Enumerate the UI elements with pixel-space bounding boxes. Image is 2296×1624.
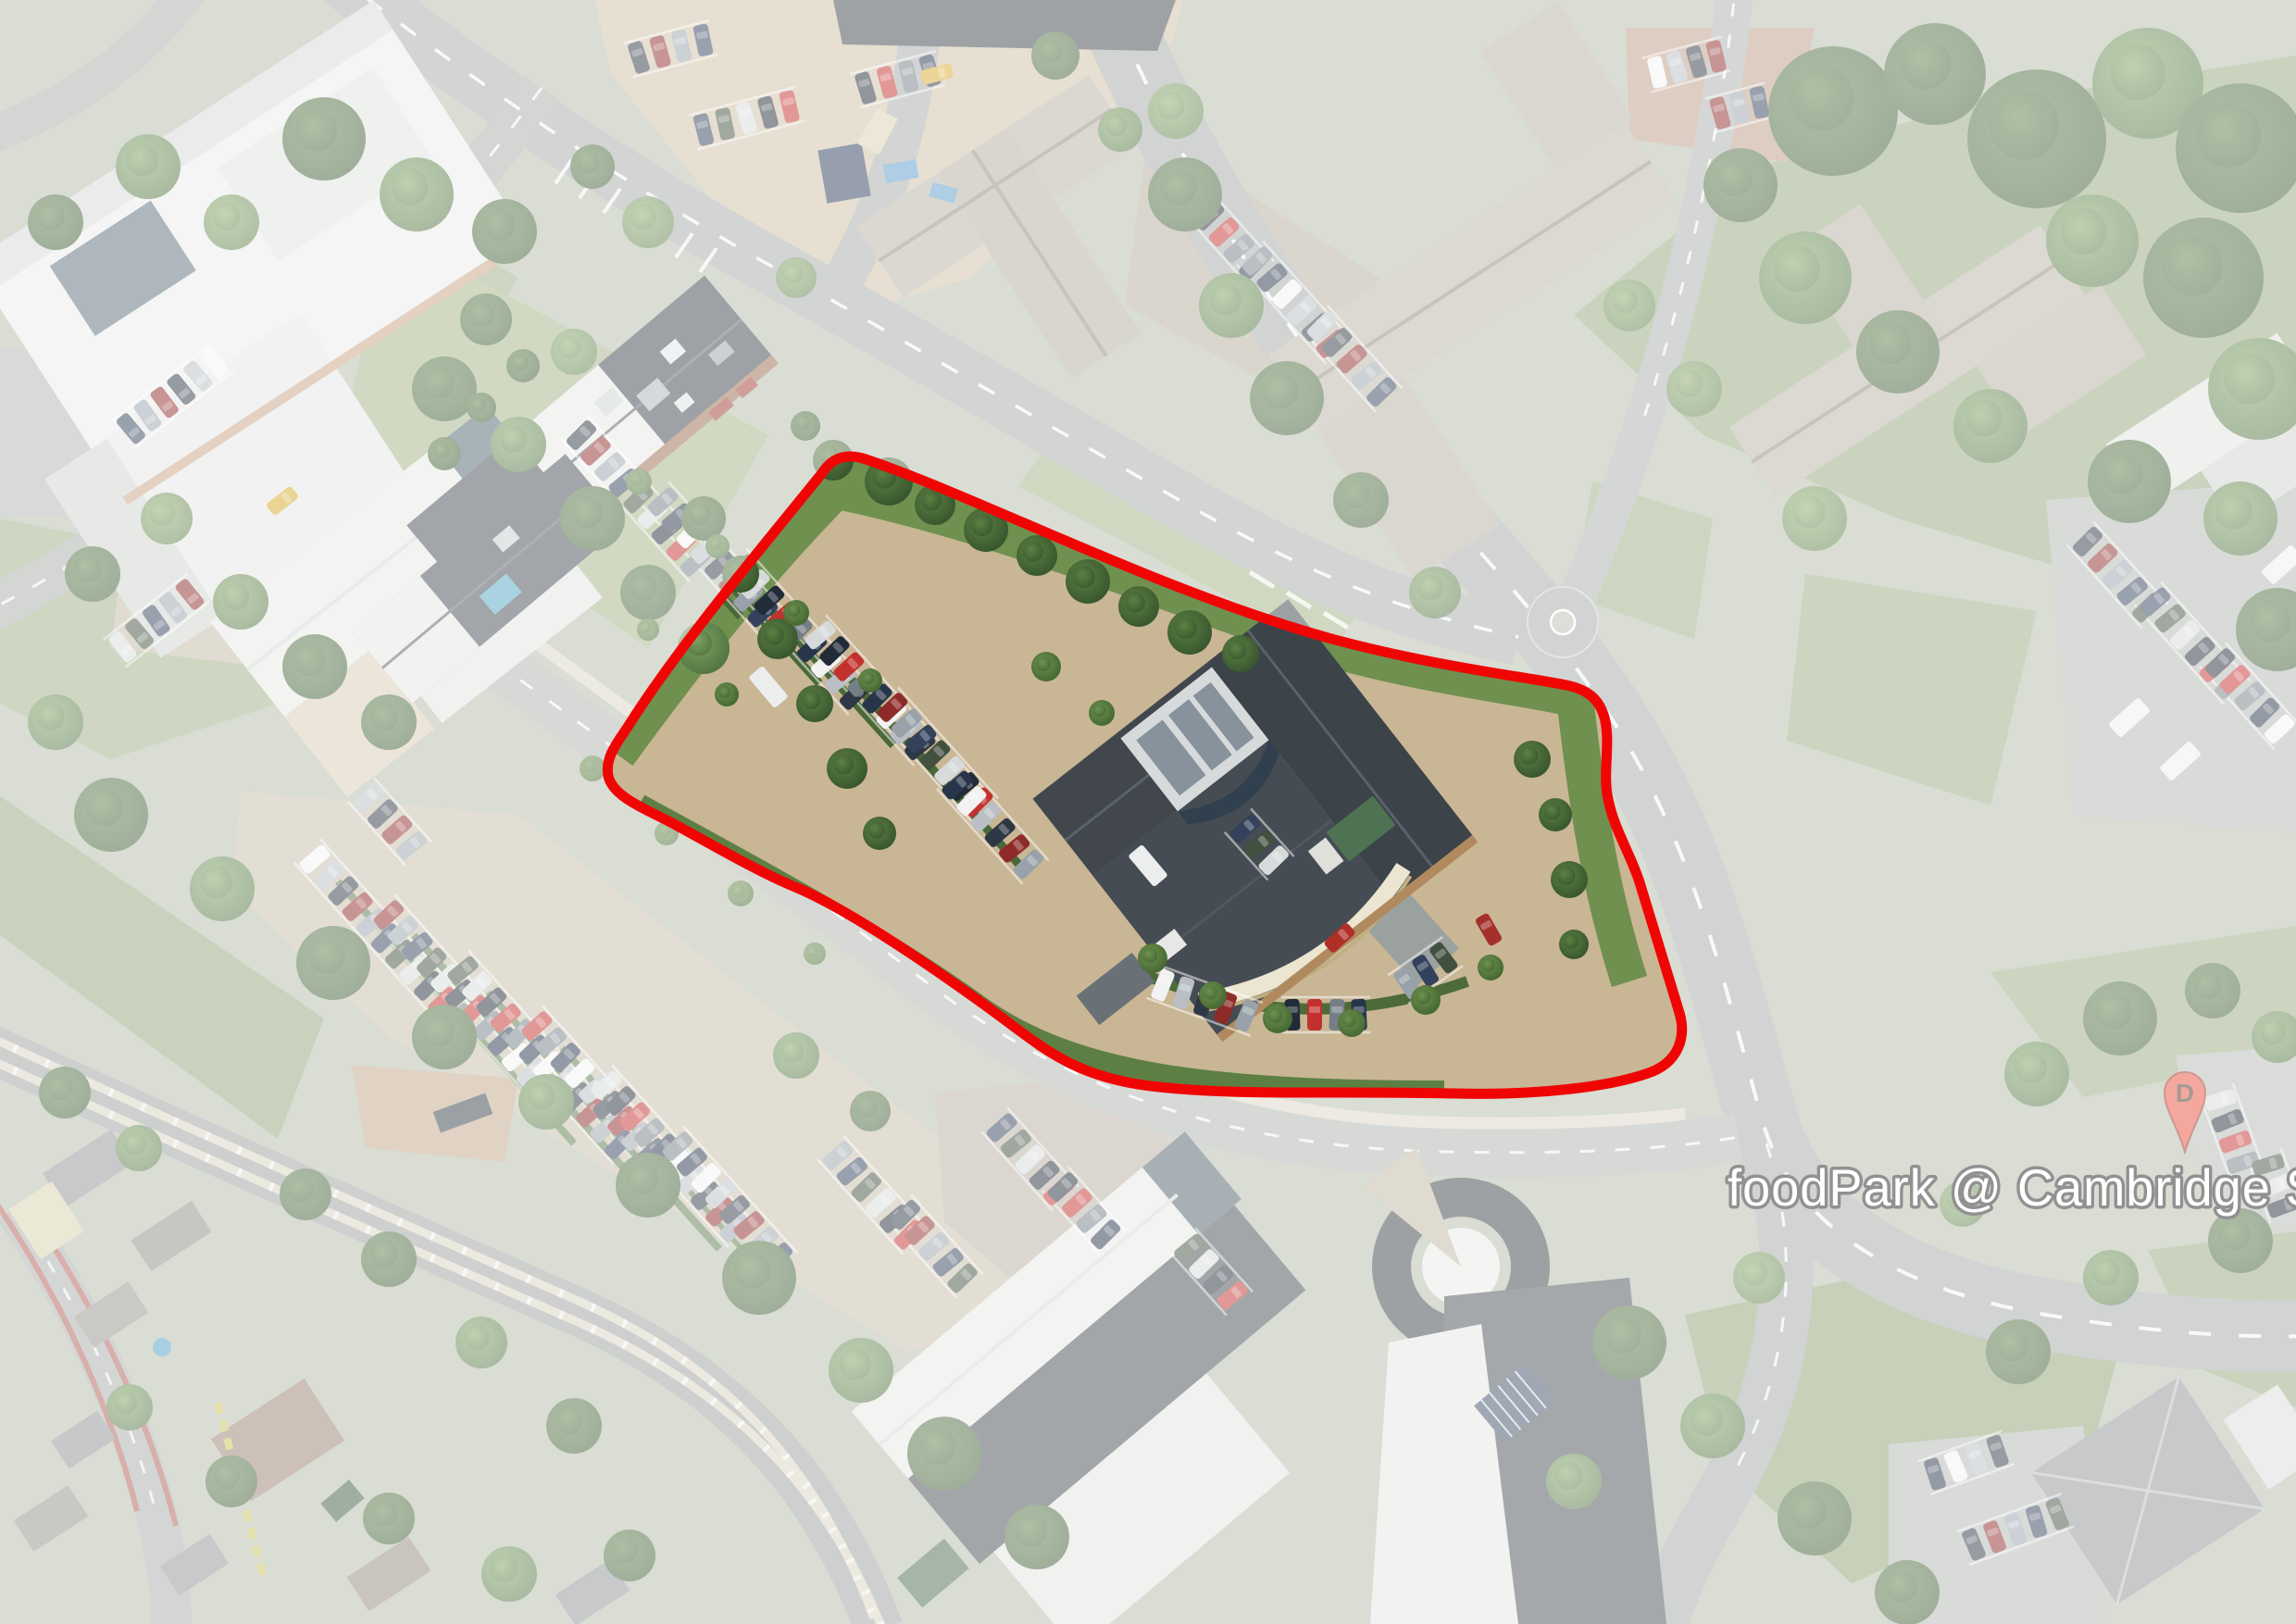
aerial-map-canvas[interactable]: foodPark @ Cambridge S D: [0, 0, 2296, 1624]
